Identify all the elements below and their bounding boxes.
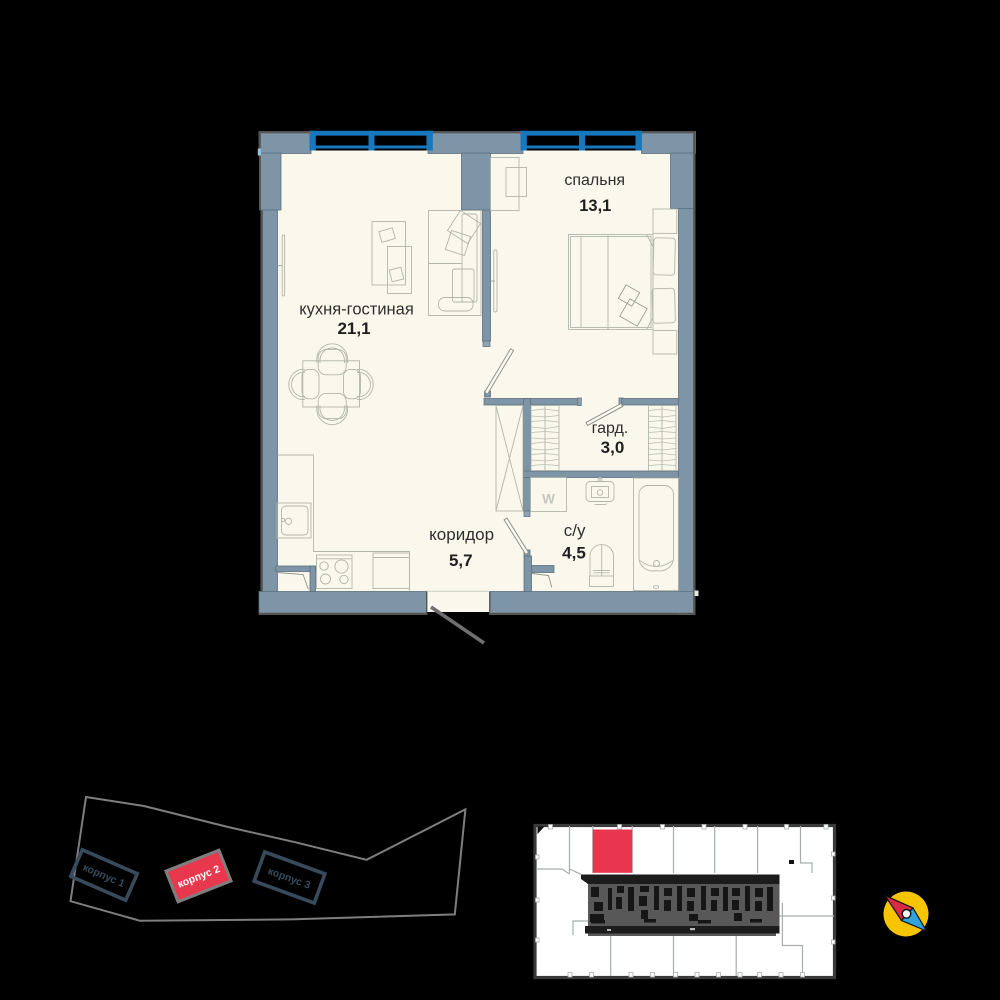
svg-text:с/у: с/у <box>564 521 586 540</box>
svg-text:кухня-гостиная: кухня-гостиная <box>299 301 414 319</box>
svg-text:5,7: 5,7 <box>449 551 473 570</box>
svg-text:W: W <box>542 492 555 507</box>
svg-text:спальня: спальня <box>564 172 625 189</box>
svg-text:13,1: 13,1 <box>579 197 611 215</box>
svg-text:коридор: коридор <box>429 525 494 544</box>
svg-text:3,0: 3,0 <box>601 438 625 457</box>
svg-text:4,5: 4,5 <box>562 544 586 563</box>
svg-text:21,1: 21,1 <box>337 319 370 338</box>
svg-text:гард.: гард. <box>592 420 629 437</box>
